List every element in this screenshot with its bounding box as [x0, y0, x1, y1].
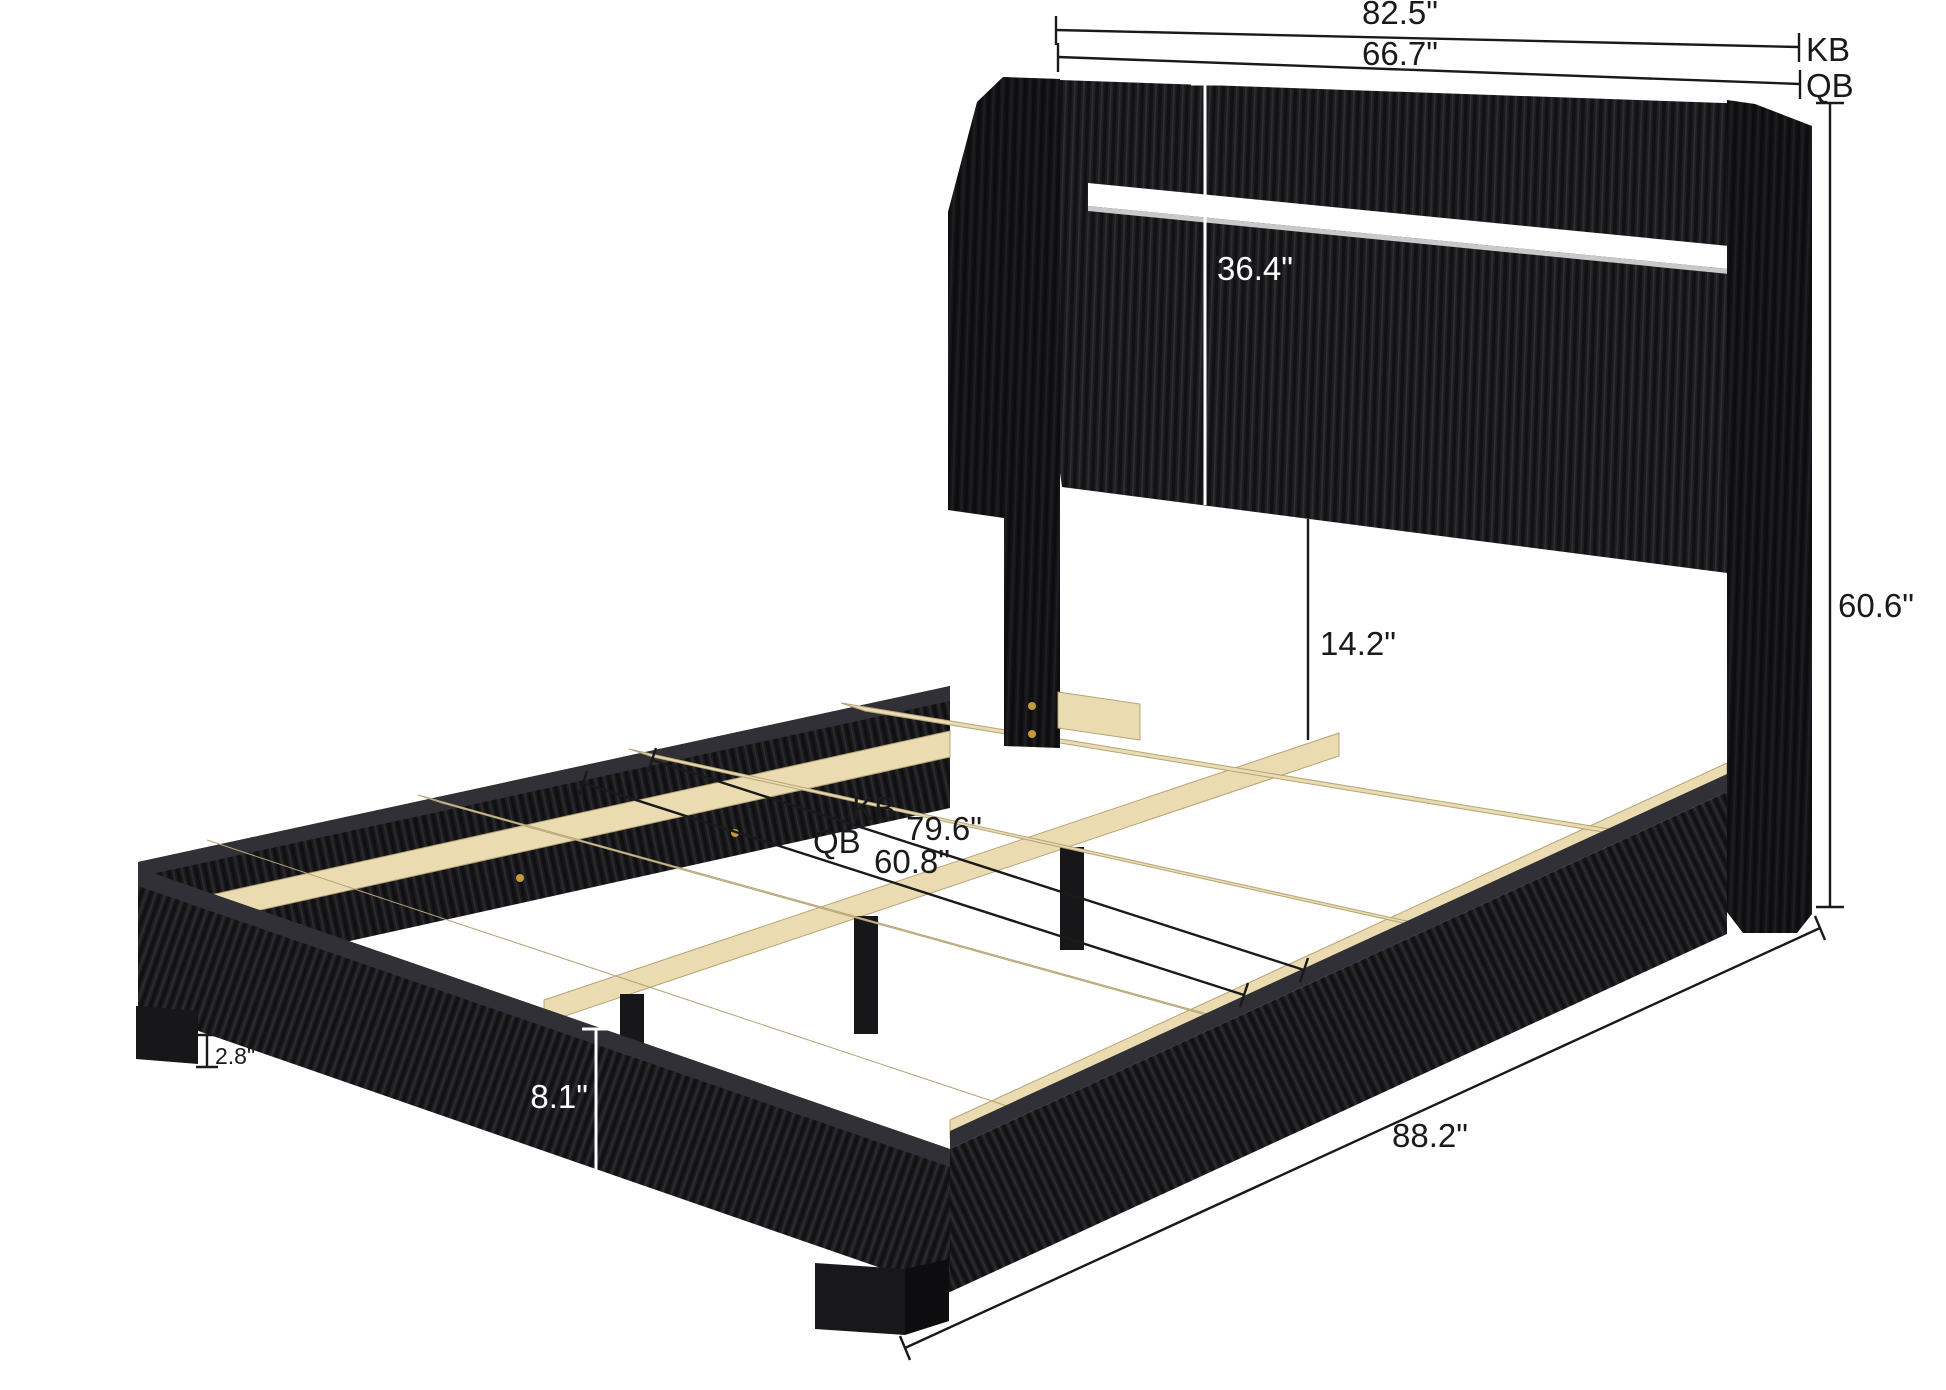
overall-length-label: 88.2" — [1392, 1117, 1468, 1154]
diagram-canvas: 82.5" KB 66.7" QB 36.4" 14.2" 60.6" KB 7… — [0, 0, 1946, 1390]
dim-headboard-bottom-to-slats: 14.2" — [1308, 519, 1396, 740]
side-rail-height-label: 8.1" — [530, 1078, 588, 1115]
foot-front-leg — [815, 1263, 905, 1335]
headboard-panel — [1003, 78, 1758, 577]
center-support-leg — [854, 916, 878, 1034]
dim-overall-height: 60.6" — [1816, 103, 1914, 907]
corner-bracket — [1058, 692, 1140, 740]
kb-interior-tag: KB — [852, 790, 896, 827]
foot-front-leg-side — [905, 1259, 949, 1335]
qb-interior-width-label: 60.8" — [874, 843, 950, 880]
kb-size-tag: KB — [1806, 31, 1850, 68]
headboard-bottom-to-slats-label: 14.2" — [1320, 625, 1396, 662]
screw-icon — [516, 874, 524, 882]
headboard-right-wing-shade — [1727, 100, 1812, 933]
overall-height-label: 60.6" — [1838, 587, 1914, 624]
dim-tick — [1815, 916, 1825, 940]
headboard-panel-height-label: 36.4" — [1217, 250, 1293, 287]
screw-icon — [1028, 730, 1036, 738]
leg-height-label: 2.8" — [215, 1043, 255, 1069]
dim-tick — [900, 1336, 910, 1360]
foot-left-leg — [136, 1006, 198, 1064]
qb-headboard-width-label: 66.7" — [1362, 35, 1438, 72]
dim-kb-headboard-width: 82.5" KB — [1056, 0, 1850, 68]
headboard-left-wing-shade — [948, 77, 1060, 748]
qb-size-tag: QB — [1806, 67, 1854, 104]
screw-icon — [1028, 702, 1036, 710]
bed-dimension-diagram: 82.5" KB 66.7" QB 36.4" 14.2" 60.6" KB 7… — [0, 0, 1946, 1390]
kb-interior-length-label: 79.6" — [906, 810, 982, 847]
qb-interior-tag: QB — [813, 823, 861, 860]
kb-headboard-width-label: 82.5" — [1362, 0, 1438, 31]
